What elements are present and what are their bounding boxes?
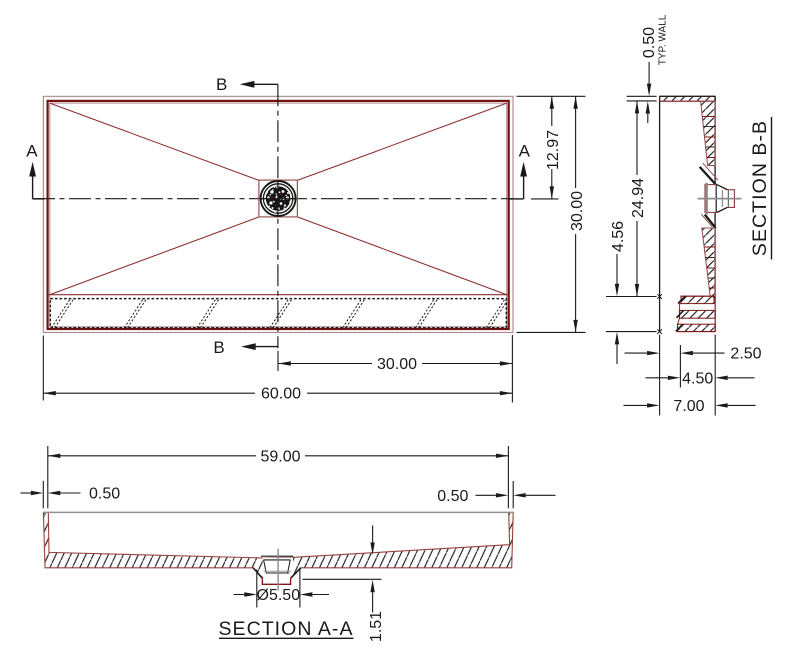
svg-text:59.00: 59.00 <box>260 448 300 465</box>
svg-text:SECTION A-A: SECTION A-A <box>218 618 353 640</box>
svg-text:A: A <box>519 142 531 161</box>
svg-text:30.00: 30.00 <box>569 191 586 231</box>
svg-text:7.00: 7.00 <box>673 398 704 415</box>
svg-text:A: A <box>26 142 38 161</box>
svg-text:4.56: 4.56 <box>610 221 627 252</box>
svg-text:SECTION B-B: SECTION B-B <box>749 120 771 256</box>
svg-text:12.97: 12.97 <box>545 130 562 170</box>
svg-text:B: B <box>213 338 224 357</box>
svg-text:60.00: 60.00 <box>261 386 301 403</box>
svg-text:0.50: 0.50 <box>89 486 120 503</box>
svg-text:0.50: 0.50 <box>437 488 468 505</box>
svg-text:B: B <box>216 75 227 94</box>
svg-text:0.50: 0.50 <box>641 27 658 58</box>
svg-text:4.50: 4.50 <box>682 370 713 387</box>
svg-text:Ø5.50: Ø5.50 <box>257 587 301 604</box>
svg-text:1.51: 1.51 <box>368 611 385 642</box>
svg-text:30.00: 30.00 <box>377 356 417 373</box>
svg-text:TYP. WALL: TYP. WALL <box>657 14 668 65</box>
svg-text:2.50: 2.50 <box>730 346 761 363</box>
svg-text:24.94: 24.94 <box>630 178 647 218</box>
